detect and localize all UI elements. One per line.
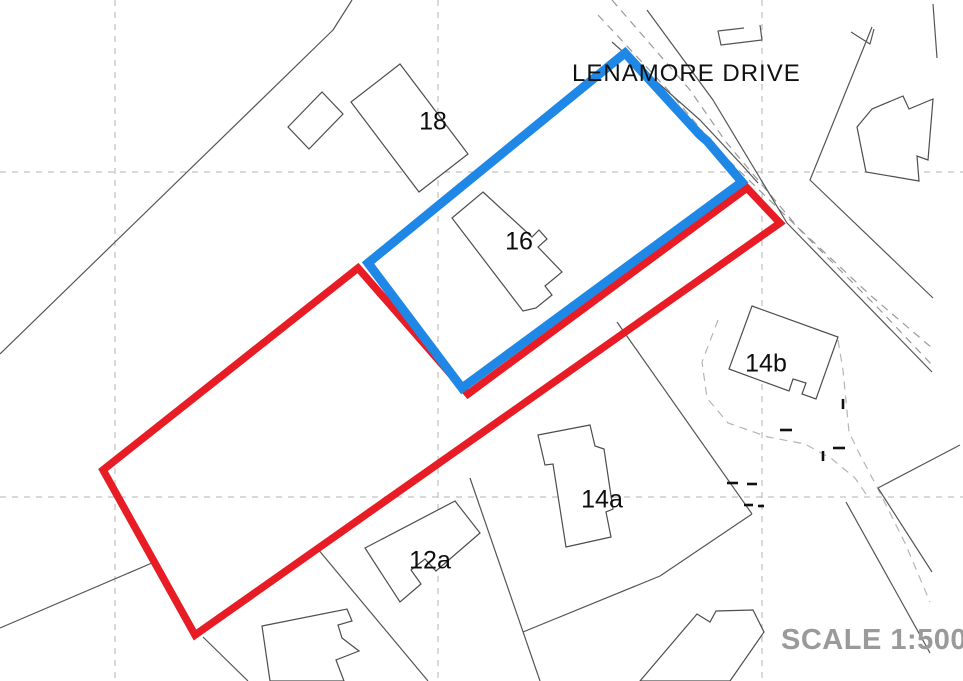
- outbuilding-top: [718, 25, 762, 45]
- scale-label: SCALE 1:500: [781, 624, 963, 657]
- street-name-label: LENAMORE DRIVE: [572, 60, 801, 88]
- house-number-label-12a: 12a: [409, 547, 451, 575]
- house-number-label-14b: 14b: [745, 350, 787, 378]
- house-18-garage: [288, 92, 343, 149]
- fence-right-upper: [878, 445, 960, 488]
- fence-below-red-corner: [203, 637, 248, 681]
- fence-14a-14b: [617, 322, 752, 514]
- house-bottom-left: [262, 609, 359, 681]
- house-bottom-right: [640, 610, 764, 681]
- house-top-right: [857, 96, 933, 181]
- house-number-label-14a: 14a: [581, 486, 623, 514]
- fence-12a-east: [470, 478, 540, 681]
- road-stub-top-right: [933, 4, 937, 58]
- site-plan-map: 181614b14a12a LENAMORE DRIVE SCALE 1:500: [0, 0, 963, 681]
- garden-dash-right: [838, 340, 930, 602]
- house-number-label-18: 18: [419, 108, 447, 136]
- house-number-label-16: 16: [505, 228, 533, 256]
- field-line-left-diagonal: [0, 0, 352, 354]
- fence-right-mid: [878, 488, 932, 572]
- fence-bottom-left: [0, 563, 152, 628]
- site-plan-drawing: 181614b14a12a: [0, 0, 963, 681]
- house-18-main: [351, 64, 468, 192]
